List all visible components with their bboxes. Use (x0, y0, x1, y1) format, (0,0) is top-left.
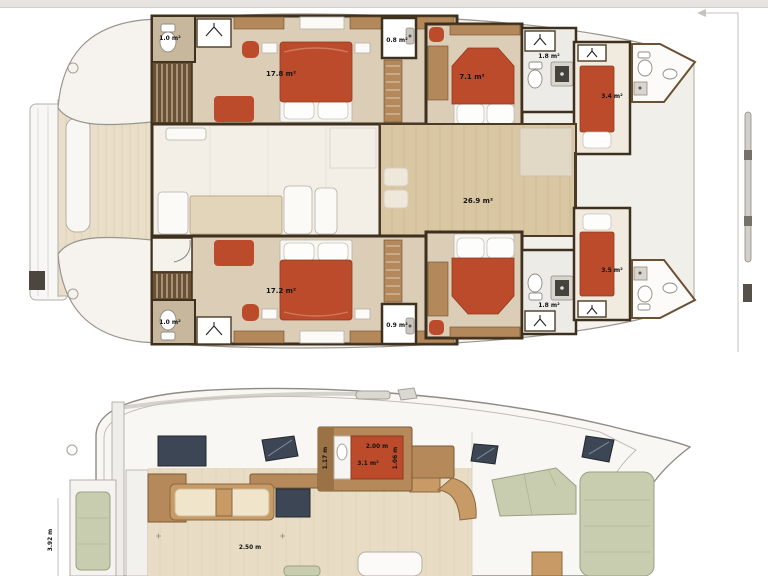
area-label: 7.1 m² (459, 73, 484, 81)
arrow-icon (697, 9, 706, 17)
dimension-label: 2.50 m (239, 545, 261, 551)
berth-port-bow: 3.4 m² (574, 42, 630, 154)
wardrobe (428, 46, 448, 100)
area-label: 3.1 m² (357, 460, 379, 467)
closet (197, 19, 231, 47)
floorplan-canvas: 1.0 m² 17.8 m² (0, 0, 768, 576)
stairs-starboard (152, 272, 192, 300)
area-label: 3.4 m² (601, 93, 623, 100)
double-bed (452, 48, 514, 128)
area-label: 17.8 m² (266, 70, 296, 78)
sink-icon (663, 69, 677, 79)
single-bed (580, 214, 614, 296)
double-bed (280, 42, 352, 122)
cabin-stbd-fwd (426, 232, 522, 338)
deck-fitting (398, 388, 417, 400)
sofa (214, 240, 254, 266)
area-label: 1.8 m² (538, 53, 560, 60)
toilet-icon (528, 70, 542, 88)
double-bed (452, 234, 514, 314)
main-deck-plan: 3.92 m 2.50 m (48, 388, 690, 576)
area-label: 0.9 m² (386, 322, 408, 329)
area-label: 3.5 m² (601, 267, 623, 274)
floorplan-page: 1.0 m² 17.8 m² (0, 0, 768, 576)
cabin-port-fwd: 7.1 m² (426, 24, 522, 130)
central-suite (152, 124, 380, 236)
stairs-port (152, 62, 192, 124)
double-bed (280, 240, 352, 320)
wardrobe (384, 60, 402, 122)
cockpit-table (358, 552, 422, 576)
area-label: 0.8 m² (386, 37, 408, 44)
area-label: 1.0 m² (159, 35, 181, 42)
dimension-label: 2.00 m (366, 444, 388, 450)
sink-icon (337, 444, 347, 460)
bow-rigging (697, 9, 752, 352)
cockpit-bench (70, 480, 116, 576)
single-bed (580, 66, 614, 148)
bath-stbd-fwd: 1.8 m² (522, 250, 576, 334)
tv-screen (158, 436, 206, 466)
stool (242, 304, 259, 321)
area-label: 26.9 m² (463, 197, 493, 205)
sofa (214, 96, 254, 122)
table (190, 196, 282, 234)
wardrobe (428, 262, 448, 316)
area-label: 1.0 m² (159, 319, 181, 326)
area-label: 1.8 m² (538, 302, 560, 309)
bath-port-fwd: 1.8 m² (522, 28, 576, 112)
stool (242, 41, 259, 58)
deck-fitting (356, 391, 390, 399)
area-label: 17.2 m² (266, 287, 296, 295)
wc-stbd-aft: 1.0 m² (152, 300, 195, 344)
toilet-icon (161, 24, 175, 32)
deck-hatch (67, 445, 77, 455)
nav-cabinet (406, 446, 454, 478)
saloon: 26.9 m² (380, 124, 576, 236)
cabinet (532, 552, 562, 576)
dimension-label: 3.92 m (48, 529, 54, 551)
sofa (170, 484, 274, 520)
toilet-icon (638, 286, 652, 302)
closet (197, 317, 231, 344)
top-strip (0, 0, 768, 7)
berth-stbd-bow: 3.5 m² (574, 208, 630, 320)
stool (429, 320, 444, 335)
wc-stbd-mid: 0.9 m² (382, 304, 416, 344)
dimension-label: 1.06 m (393, 447, 399, 469)
toilet-icon (529, 62, 542, 69)
cushion (580, 472, 654, 576)
toilet-icon (638, 60, 652, 76)
step (410, 478, 440, 492)
stool (429, 27, 444, 42)
tv-screen (276, 489, 310, 517)
dimension-label: 1.17 m (323, 447, 329, 469)
toilet-icon (528, 274, 542, 292)
upper-deck-plan: 1.0 m² 17.8 m² (29, 9, 752, 352)
galley: 2.00 m 3.1 m² 1.17 m 1.06 m (318, 427, 412, 491)
cockpit-table (66, 118, 90, 232)
wardrobe (384, 240, 402, 302)
wc-port-aft: 1.0 m² (152, 16, 195, 62)
wc-port-mid: 0.8 m² (382, 18, 416, 58)
cushion (284, 566, 320, 576)
sink-icon (663, 283, 677, 293)
stern-fitting (29, 271, 45, 290)
